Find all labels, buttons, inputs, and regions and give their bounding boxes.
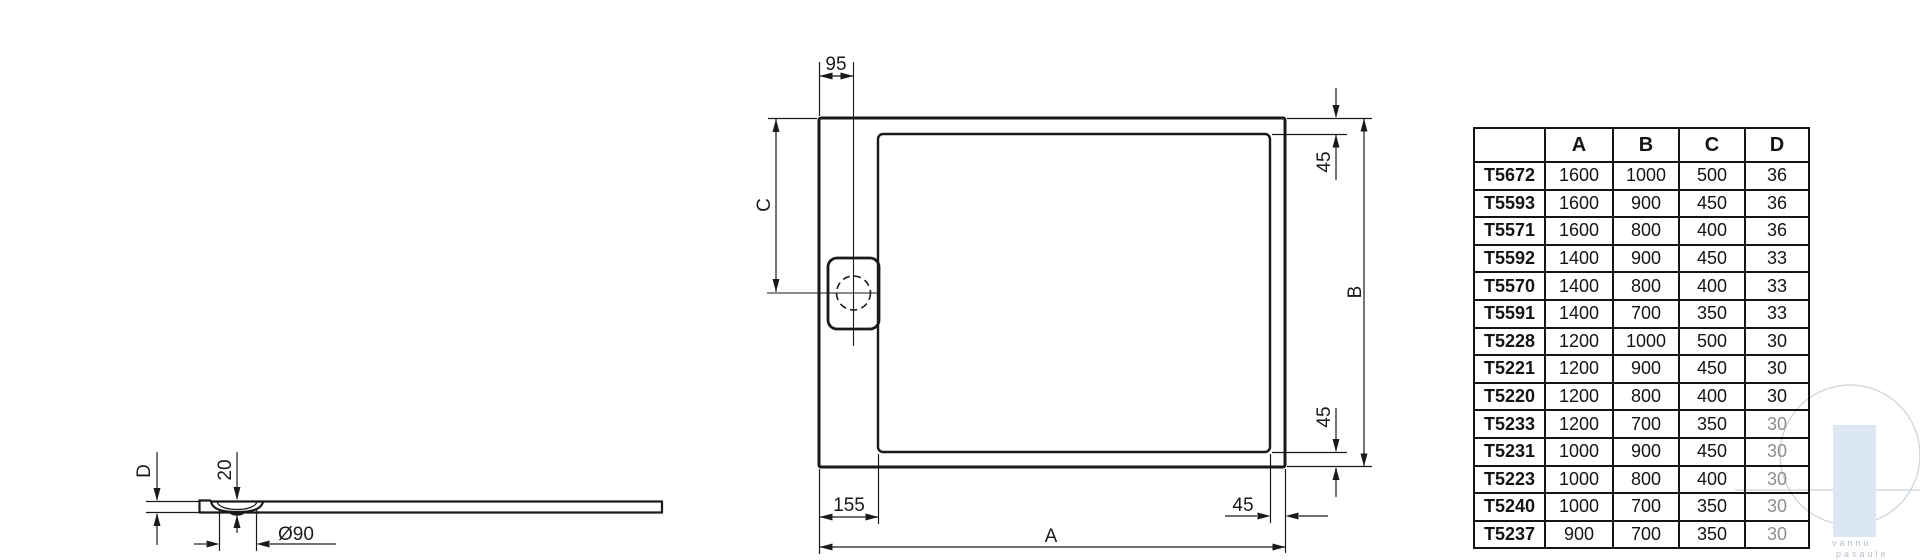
table-row: T5591140070035033 — [1474, 300, 1809, 328]
cell-model: T5223 — [1474, 466, 1545, 494]
arrowhead — [773, 279, 780, 292]
cell-model: T5571 — [1474, 217, 1545, 245]
cell-model: T5570 — [1474, 272, 1545, 300]
cell-a: 1200 — [1545, 328, 1613, 356]
arrowhead — [820, 544, 833, 551]
cell-d: 33 — [1745, 245, 1809, 273]
cell-b: 800 — [1613, 217, 1679, 245]
cell-d: 30 — [1745, 521, 1809, 549]
cell-d: 36 — [1745, 190, 1809, 218]
arrowhead — [154, 488, 161, 501]
cell-model: T5231 — [1474, 438, 1545, 466]
arrowhead — [1333, 105, 1340, 118]
profile-view: D 20 Ø90 — [134, 452, 662, 551]
cell-c: 500 — [1679, 162, 1745, 190]
table-row: T56721600100050036 — [1474, 162, 1809, 190]
arrowhead — [1333, 439, 1340, 452]
cell-b: 900 — [1613, 438, 1679, 466]
cell-d: 33 — [1745, 300, 1809, 328]
profile-drain-cap-outer — [211, 502, 263, 512]
dim-label-45-right: 45 — [1232, 495, 1253, 516]
cell-d: 33 — [1745, 272, 1809, 300]
arrowhead — [1333, 135, 1340, 148]
cell-model: T5592 — [1474, 245, 1545, 273]
dim-label-c: C — [754, 198, 775, 212]
cell-d: 36 — [1745, 162, 1809, 190]
cell-d: 30 — [1745, 328, 1809, 356]
spec-table-container: ABCD T56721600100050036T5593160090045036… — [1473, 127, 1810, 549]
cell-c: 450 — [1679, 245, 1745, 273]
cell-d: 30 — [1745, 410, 1809, 438]
arrowhead — [1361, 454, 1368, 467]
cell-a: 1400 — [1545, 245, 1613, 273]
cell-a: 1600 — [1545, 162, 1613, 190]
cell-d: 30 — [1745, 493, 1809, 521]
arrowhead — [1273, 544, 1286, 551]
table-row: T52281200100050030 — [1474, 328, 1809, 356]
cell-c: 350 — [1679, 410, 1745, 438]
cell-d: 30 — [1745, 438, 1809, 466]
cell-b: 1000 — [1613, 162, 1679, 190]
dim-label-b: B — [1345, 286, 1366, 299]
cell-model: T5591 — [1474, 300, 1545, 328]
table-row: T5221120090045030 — [1474, 355, 1809, 383]
cell-c: 350 — [1679, 300, 1745, 328]
cell-a: 900 — [1545, 521, 1613, 549]
cell-c: 350 — [1679, 493, 1745, 521]
cell-model: T5228 — [1474, 328, 1545, 356]
arrowhead — [207, 541, 220, 548]
cell-c: 500 — [1679, 328, 1745, 356]
cell-b: 900 — [1613, 355, 1679, 383]
cell-model: T5221 — [1474, 355, 1545, 383]
cell-a: 1000 — [1545, 438, 1613, 466]
dim-label-a: A — [1045, 526, 1058, 547]
cell-d: 36 — [1745, 217, 1809, 245]
cell-b: 700 — [1613, 300, 1679, 328]
table-row: T5240100070035030 — [1474, 493, 1809, 521]
table-row: T523790070035030 — [1474, 521, 1809, 549]
cell-d: 30 — [1745, 355, 1809, 383]
cell-a: 1000 — [1545, 466, 1613, 494]
cell-d: 30 — [1745, 383, 1809, 411]
technical-drawing-page: vannu pasaule D — [0, 0, 1920, 560]
arrowhead — [1333, 467, 1340, 480]
spec-table-body: T56721600100050036T5593160090045036T5571… — [1474, 162, 1809, 548]
dim-label-d: D — [134, 464, 155, 478]
tray-inner-rect — [878, 134, 1270, 452]
col-header-C: C — [1679, 128, 1745, 162]
arrowhead — [773, 119, 780, 132]
cell-b: 700 — [1613, 410, 1679, 438]
table-row: T5593160090045036 — [1474, 190, 1809, 218]
dim-label-95: 95 — [825, 54, 846, 75]
cell-a: 1000 — [1545, 493, 1613, 521]
cell-b: 800 — [1613, 383, 1679, 411]
col-header-A: A — [1545, 128, 1613, 162]
table-row: T5571160080040036 — [1474, 217, 1809, 245]
col-header-model — [1474, 128, 1545, 162]
cell-c: 400 — [1679, 217, 1745, 245]
arrowhead — [820, 514, 833, 521]
cell-b: 900 — [1613, 245, 1679, 273]
cell-a: 1400 — [1545, 272, 1613, 300]
arrowhead — [234, 487, 241, 500]
table-row: T5570140080040033 — [1474, 272, 1809, 300]
cell-b: 700 — [1613, 521, 1679, 549]
cell-a: 1200 — [1545, 383, 1613, 411]
arrowhead — [234, 515, 241, 528]
cell-b: 1000 — [1613, 328, 1679, 356]
profile-drain-cap-inner — [217, 502, 257, 510]
cell-a: 1600 — [1545, 190, 1613, 218]
top-view: 95 C 45 B 4 — [754, 54, 1372, 554]
dim-label-45-bottom: 45 — [1314, 406, 1335, 427]
dim-label-diameter: Ø90 — [278, 524, 314, 545]
arrowhead — [1258, 513, 1271, 520]
cell-model: T5220 — [1474, 383, 1545, 411]
arrowhead — [1361, 119, 1368, 132]
cell-c: 450 — [1679, 190, 1745, 218]
arrowhead — [1286, 513, 1299, 520]
dim-label-45-top: 45 — [1314, 151, 1335, 172]
spec-table-header-row: ABCD — [1474, 128, 1809, 162]
cell-a: 1200 — [1545, 355, 1613, 383]
dim-label-20: 20 — [215, 459, 236, 480]
cell-b: 800 — [1613, 272, 1679, 300]
cell-model: T5672 — [1474, 162, 1545, 190]
col-header-D: D — [1745, 128, 1809, 162]
table-row: T5223100080040030 — [1474, 466, 1809, 494]
cell-c: 400 — [1679, 383, 1745, 411]
table-row: T5231100090045030 — [1474, 438, 1809, 466]
arrowhead — [154, 513, 161, 526]
cell-b: 900 — [1613, 190, 1679, 218]
table-row: T5220120080040030 — [1474, 383, 1809, 411]
arrowhead — [257, 541, 270, 548]
cell-c: 400 — [1679, 466, 1745, 494]
tray-outer-rect — [819, 118, 1285, 467]
table-row: T5592140090045033 — [1474, 245, 1809, 273]
arrowhead — [866, 514, 879, 521]
cell-b: 800 — [1613, 466, 1679, 494]
col-header-B: B — [1613, 128, 1679, 162]
spec-table: ABCD T56721600100050036T5593160090045036… — [1473, 127, 1810, 549]
cell-a: 1400 — [1545, 300, 1613, 328]
cell-a: 1600 — [1545, 217, 1613, 245]
dim-label-155: 155 — [833, 495, 865, 516]
table-row: T5233120070035030 — [1474, 410, 1809, 438]
cell-b: 700 — [1613, 493, 1679, 521]
cell-c: 400 — [1679, 272, 1745, 300]
cell-model: T5240 — [1474, 493, 1545, 521]
cell-c: 350 — [1679, 521, 1745, 549]
cell-c: 450 — [1679, 355, 1745, 383]
cell-a: 1200 — [1545, 410, 1613, 438]
cell-d: 30 — [1745, 466, 1809, 494]
cell-model: T5237 — [1474, 521, 1545, 549]
cell-model: T5233 — [1474, 410, 1545, 438]
cell-model: T5593 — [1474, 190, 1545, 218]
cell-c: 450 — [1679, 438, 1745, 466]
